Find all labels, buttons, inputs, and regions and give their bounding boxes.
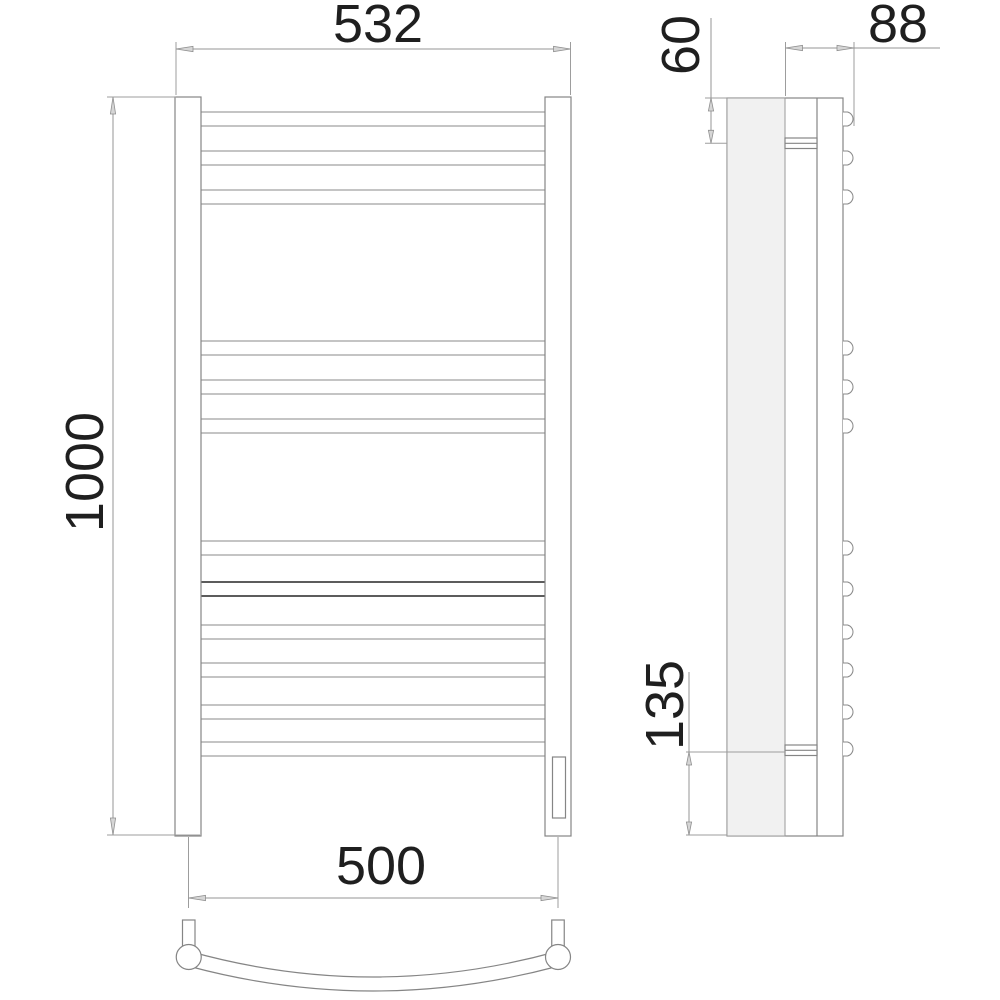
right-ball-joint <box>546 945 571 970</box>
rung-end-bump <box>843 582 853 596</box>
rung-end-bump <box>843 112 853 126</box>
dim-label-top-width: 532 <box>333 0 423 54</box>
rung-end-bump <box>843 625 853 639</box>
rung-bar <box>201 541 545 555</box>
rung-end-bump <box>843 380 853 394</box>
rung-end-bump <box>843 705 853 719</box>
side-view-rung-ends <box>843 112 853 756</box>
wall-plate <box>727 98 785 836</box>
dim-label-bottom-rail-width: 500 <box>336 836 426 896</box>
rung-end-bump <box>843 742 853 756</box>
arrow-head <box>786 45 803 50</box>
rung-bar <box>201 625 545 639</box>
rung-end-bump <box>843 341 853 355</box>
dim-label-bottom-bracket-offset: 135 <box>635 660 695 750</box>
dim-label-depth: 88 <box>868 0 928 54</box>
rung-bar <box>201 742 545 756</box>
rung-bar <box>201 419 545 433</box>
right-post <box>545 97 571 836</box>
arrow-head <box>110 97 115 114</box>
arrow-head <box>686 752 691 765</box>
rung-bar <box>201 705 545 719</box>
arrow-head <box>837 45 854 50</box>
rung-bar <box>201 190 545 204</box>
dimension-top-width: 532 <box>176 0 571 95</box>
arrow-head <box>708 98 713 111</box>
arrow-head <box>541 895 558 900</box>
rung-end-bump <box>843 190 853 204</box>
rung-end-bump <box>843 419 853 433</box>
arrow-head <box>686 822 691 835</box>
bottom-curved-rail <box>190 952 557 992</box>
dimension-top-bracket-offset: 60 <box>651 15 727 143</box>
towel-rail-drawing: 532 1000 500 60 88 <box>0 0 1000 1000</box>
rung-bar <box>201 341 545 355</box>
dim-label-overall-height: 1000 <box>55 412 115 532</box>
arrow-head <box>554 46 571 51</box>
arrow-head <box>189 895 206 900</box>
rung-bar-bold <box>199 582 547 596</box>
rung-end-bump <box>843 151 853 165</box>
arrow-head <box>176 46 193 51</box>
front-view-rungs <box>199 112 547 756</box>
heating-element-housing <box>553 757 566 818</box>
rung-end-bump <box>843 663 853 677</box>
right-ball-stub <box>552 920 565 948</box>
rung-bar <box>201 112 545 126</box>
left-ball-stub <box>183 920 196 948</box>
left-ball-joint <box>176 945 201 970</box>
rung-end-bump <box>843 541 853 555</box>
drawing-canvas: 532 1000 500 60 88 <box>0 0 1000 1000</box>
side-view <box>727 98 853 836</box>
rung-bar <box>201 380 545 394</box>
rung-bar <box>201 663 545 677</box>
dim-label-top-bracket-offset: 60 <box>651 15 711 75</box>
dimension-bottom-rail-width: 500 <box>189 836 559 908</box>
left-post <box>175 97 201 836</box>
arrow-head <box>110 818 115 835</box>
arrow-head <box>708 130 713 143</box>
rung-bar <box>201 151 545 165</box>
